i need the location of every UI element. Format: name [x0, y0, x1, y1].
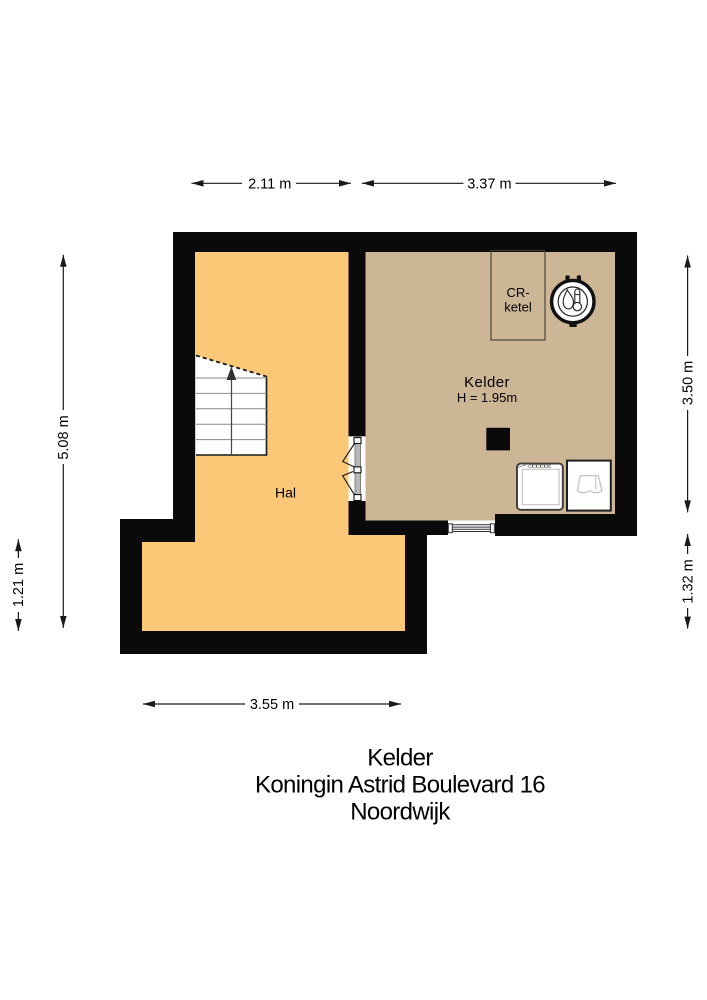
svg-text:Hal: Hal	[275, 485, 296, 501]
svg-text:H = 1.95m: H = 1.95m	[457, 390, 517, 405]
svg-text:Kelder: Kelder	[367, 745, 433, 772]
svg-text:CR-: CR-	[506, 285, 529, 300]
svg-text:1.21 m: 1.21 m	[11, 563, 27, 607]
svg-text:3.55 m: 3.55 m	[250, 697, 294, 713]
svg-text:2.11 m: 2.11 m	[248, 176, 291, 192]
svg-text:Noordwijk: Noordwijk	[350, 799, 451, 826]
svg-text:3.50 m: 3.50 m	[681, 361, 697, 405]
svg-text:ketel: ketel	[504, 300, 532, 315]
svg-text:3.37 m: 3.37 m	[467, 176, 511, 192]
svg-text:Kelder: Kelder	[464, 374, 510, 391]
svg-text:1.32 m: 1.32 m	[681, 559, 697, 603]
svg-text:Koningin Astrid Boulevard 16: Koningin Astrid Boulevard 16	[255, 772, 545, 799]
svg-text:5.08 m: 5.08 m	[56, 415, 72, 459]
